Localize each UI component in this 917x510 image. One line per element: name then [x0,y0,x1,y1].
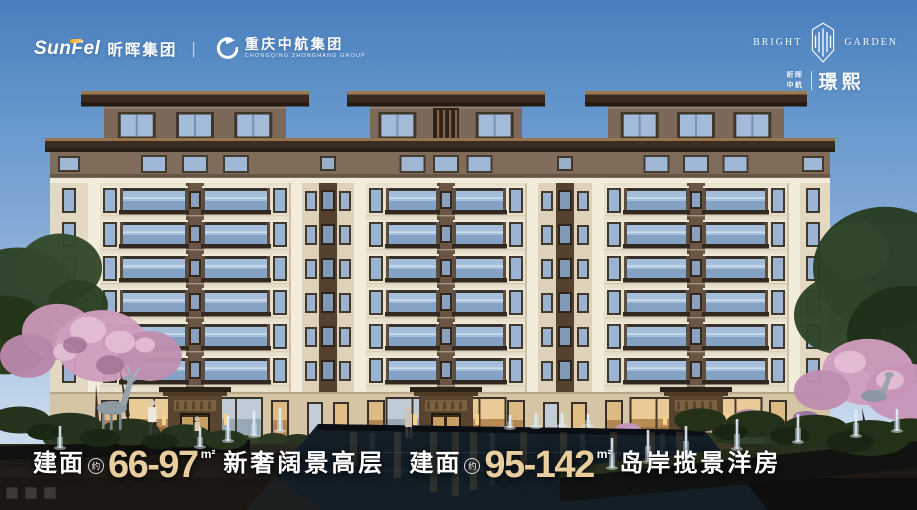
area-range: 95-142 [484,449,593,481]
watermark-glyph [25,487,37,499]
area-unit: m² [597,447,612,461]
project-logo-en-row: BRIGHT GARDEN [753,22,898,63]
project-logo-cn-small: 昕晖 中航 [787,71,804,89]
sunfel-cn-name: 昕晖集团 [107,38,177,60]
project-logo: BRIGHT GARDEN 昕晖 中航 璟熙 [753,22,898,94]
area-label: 建面 [409,443,461,478]
watermark-glyph [44,487,56,499]
phoenix-swirl-icon [210,36,238,61]
tagline: 建面 约 66-97 m² 新奢阔景高层 建面 约 95-142 m² 岛岸揽景… [33,443,781,481]
area-unit: m² [201,447,216,461]
approx-circle-mark: 约 [464,458,480,474]
product-desc: 岛岸揽景洋房 [619,443,781,478]
project-name: 璟熙 [819,67,865,94]
partner-cn-name: 重庆中航集团 [245,37,366,51]
brand-bar: SunFel 昕晖集团 | 重庆中航集团 CHONGQING ZHONGHANG… [34,36,366,61]
area-label: 建面 [33,443,85,478]
watermark-glyph [6,487,18,499]
product-desc: 新奢阔景高层 [223,443,385,478]
area-range: 66-97 [108,449,198,481]
sunfel-wordmark: SunFel [34,38,100,60]
project-logo-en-left: BRIGHT [753,37,802,48]
project-logo-cn-small-bottom: 中航 [787,81,804,90]
approx-circle-mark: 约 [88,458,104,474]
project-logo-divider [811,71,812,90]
garden-emblem-icon [808,22,838,63]
project-logo-cn-small-top: 昕晖 [787,71,804,80]
watermark [6,487,56,499]
tagline-flats: 建面 约 95-142 m² 岛岸揽景洋房 [409,443,781,481]
tagline-highrise: 建面 约 66-97 m² 新奢阔景高层 [33,443,385,481]
brand-divider: | [191,39,195,59]
partner-en-name: CHONGQING ZHONGHANG GROUP [245,54,366,60]
partner-logo: 重庆中航集团 CHONGQING ZHONGHANG GROUP [210,36,366,61]
project-logo-en-right: GARDEN [844,37,898,48]
poster-stage: SunFel 昕晖集团 | 重庆中航集团 CHONGQING ZHONGHANG… [0,0,917,510]
project-logo-cn-row: 昕晖 中航 璟熙 [787,67,865,94]
sunfel-logo: SunFel 昕晖集团 [34,38,177,60]
partner-text: 重庆中航集团 CHONGQING ZHONGHANG GROUP [245,37,366,60]
